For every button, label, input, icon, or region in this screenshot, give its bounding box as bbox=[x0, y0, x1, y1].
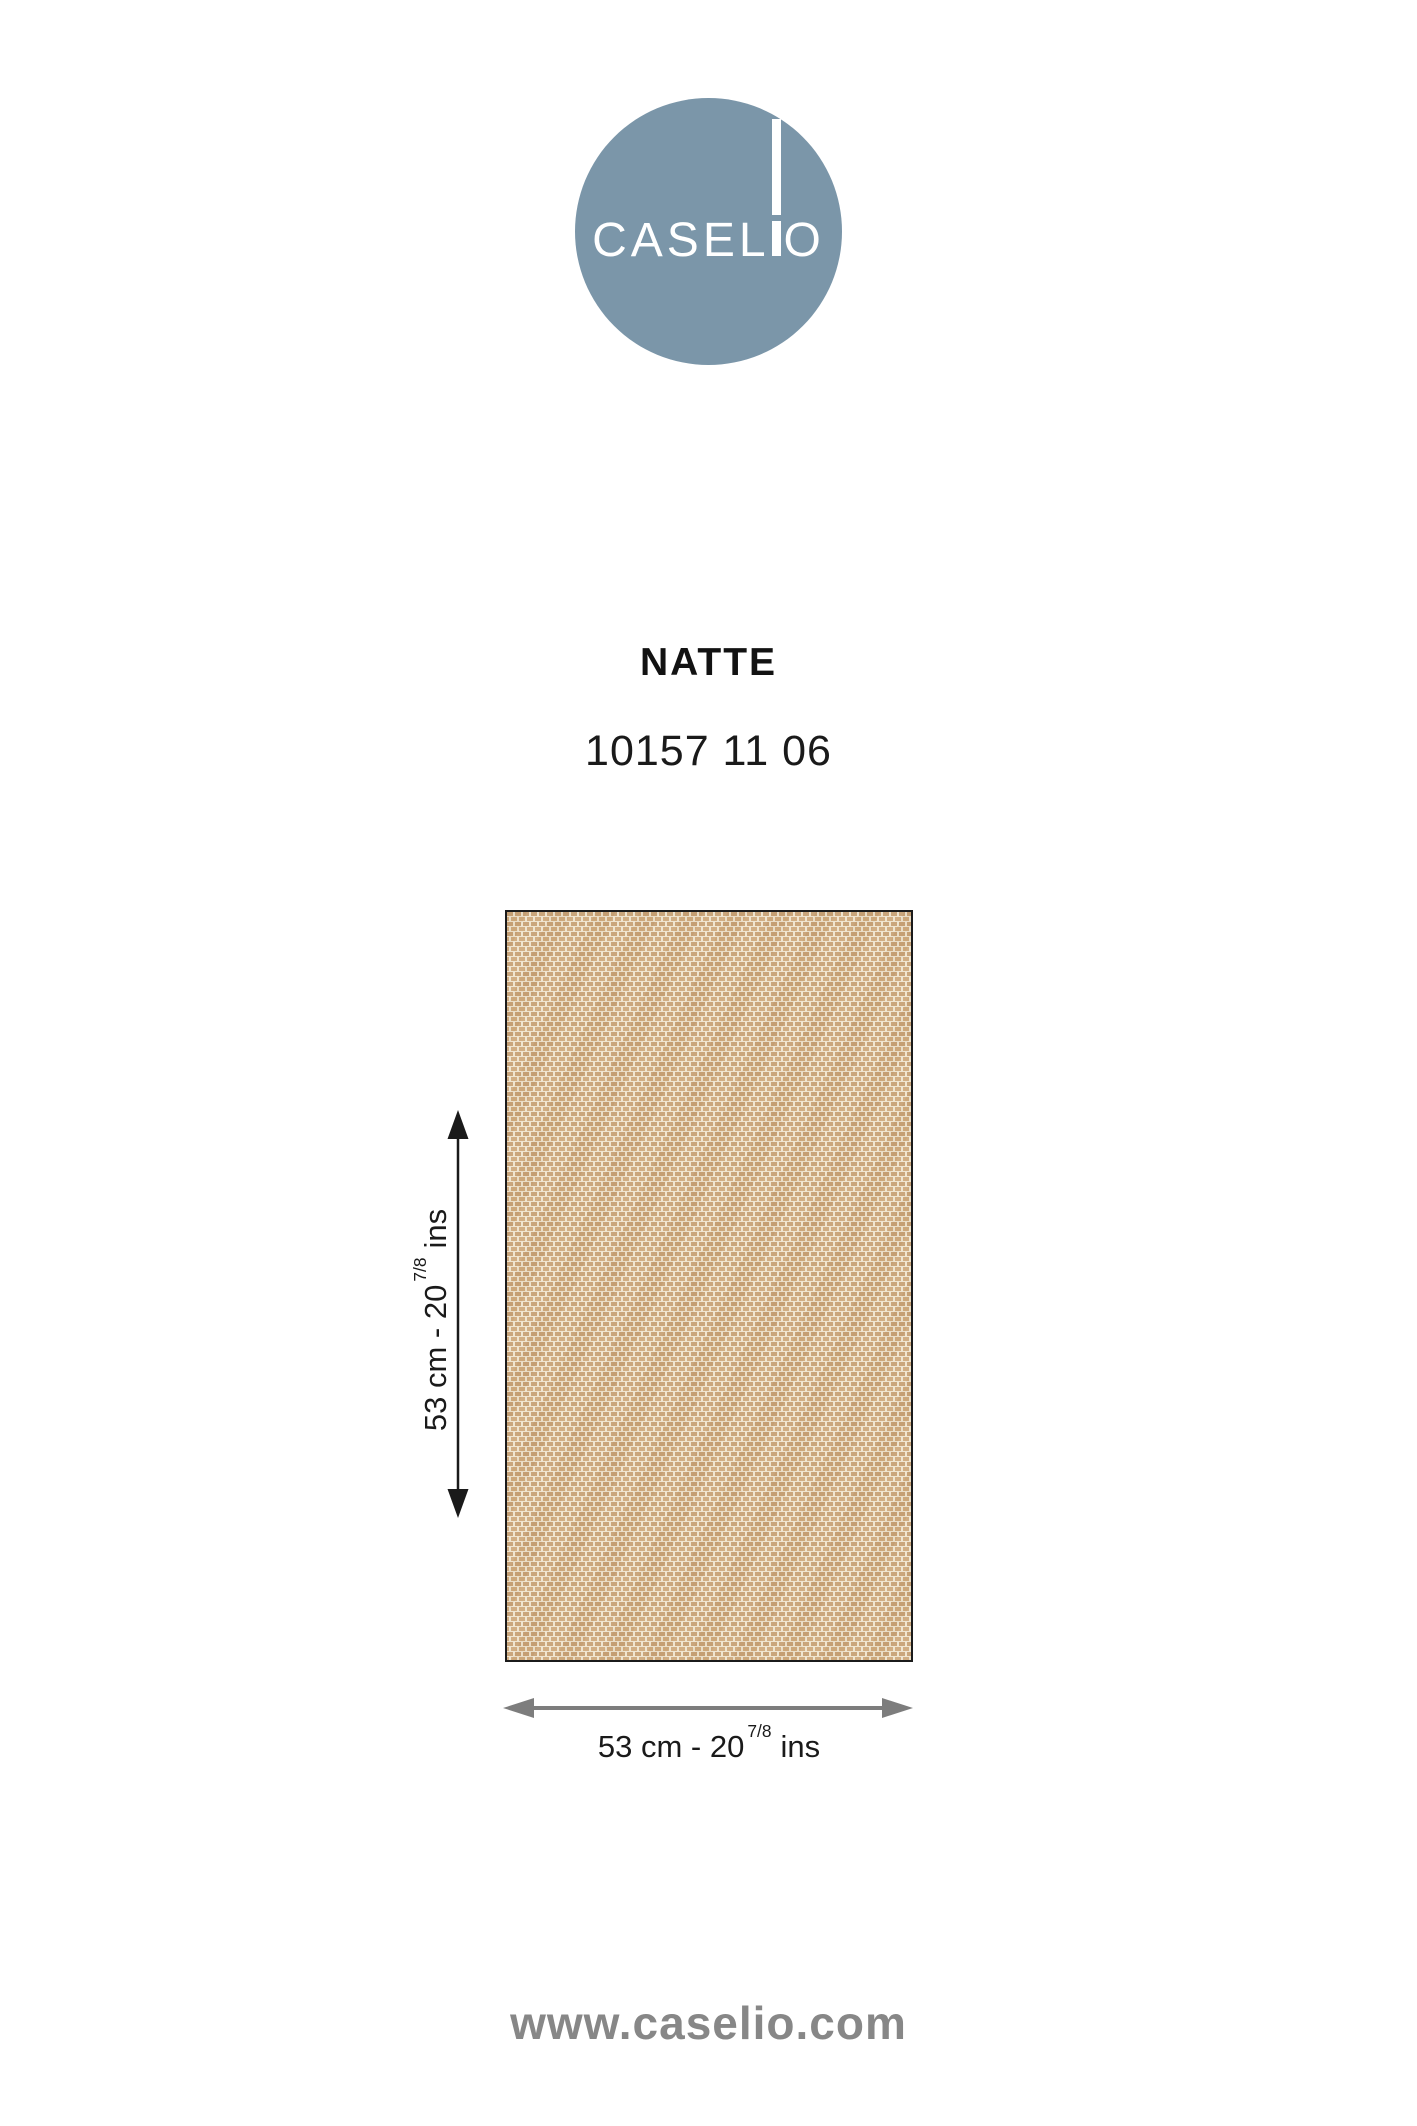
logo-text-right: O bbox=[784, 214, 825, 267]
height-value: 53 cm - 20 bbox=[418, 1285, 453, 1431]
caselio-logo: CASELO bbox=[575, 98, 842, 365]
logo-wordmark: CASELO bbox=[575, 217, 842, 265]
logo-text-left: CASEL bbox=[592, 214, 769, 267]
width-value: 53 cm - 20 bbox=[598, 1729, 744, 1764]
product-sheet: CASELO NATTE 10157 11 06 53 cm - 207/8in… bbox=[0, 0, 1417, 2126]
product-name: NATTE bbox=[0, 641, 1417, 685]
width-unit: ins bbox=[780, 1729, 820, 1764]
height-fraction: 7/8 bbox=[410, 1258, 430, 1282]
wallpaper-swatch bbox=[505, 910, 913, 1662]
website-link[interactable]: www.caselio.com bbox=[0, 1996, 1417, 2050]
product-reference: 10157 11 06 bbox=[0, 727, 1417, 776]
width-fraction: 7/8 bbox=[747, 1721, 771, 1741]
logo-i-ascender-bar bbox=[772, 119, 781, 215]
height-unit: ins bbox=[418, 1209, 453, 1249]
height-dimension-label: 53 cm - 207/8ins bbox=[418, 1209, 454, 1431]
logo-i-glyph bbox=[772, 221, 781, 256]
width-dimension-label: 53 cm - 207/8ins bbox=[598, 1729, 820, 1765]
horizontal-arrow-icon bbox=[503, 1695, 913, 1721]
